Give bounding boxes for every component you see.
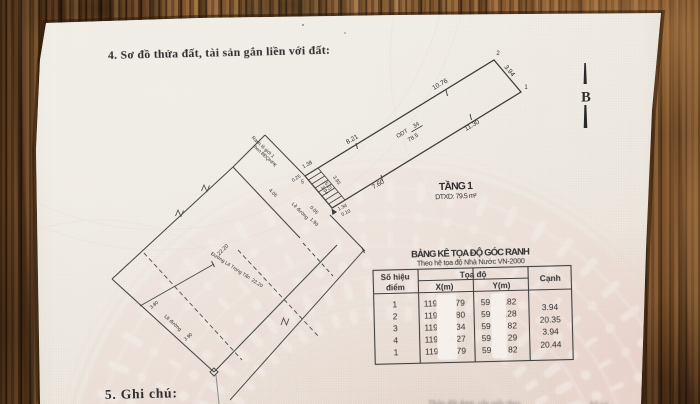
svg-text:119: 119 (424, 322, 438, 332)
svg-text:59: 59 (482, 333, 492, 343)
svg-text:59: 59 (482, 345, 492, 355)
svg-text:119: 119 (425, 334, 439, 344)
svg-text:82: 82 (507, 320, 517, 330)
svg-text:.82: .82 (505, 296, 517, 306)
svg-text:.28: .28 (505, 308, 517, 318)
svg-text:1: 1 (394, 347, 399, 357)
svg-text:5: 5 (301, 180, 304, 186)
svg-text:Thửa đất được cấp giấy theo: Thửa đất được cấp giấy theo (428, 399, 520, 404)
svg-text:hồ sơ: hồ sơ (590, 400, 608, 404)
svg-text:3.94: 3.94 (542, 326, 559, 336)
svg-text:20.44: 20.44 (540, 339, 562, 350)
svg-text:59: 59 (481, 321, 491, 331)
svg-text:2: 2 (393, 311, 398, 321)
svg-text:4: 4 (393, 335, 398, 345)
svg-text:Tọa độ: Tọa độ (460, 270, 487, 280)
svg-text:5. Ghi chú:: 5. Ghi chú: (105, 385, 177, 402)
svg-text:điểm: điểm (386, 283, 405, 292)
svg-text:DTXD: 79.5 m²: DTXD: 79.5 m² (435, 193, 477, 201)
svg-text:119: 119 (424, 310, 438, 320)
svg-text:59: 59 (481, 309, 491, 319)
svg-text:1: 1 (392, 299, 397, 309)
svg-text:29: 29 (508, 332, 518, 342)
svg-text:82: 82 (508, 344, 518, 354)
svg-text:3: 3 (393, 323, 398, 333)
svg-text:B: B (581, 90, 591, 106)
svg-text:Số hiệu: Số hiệu (381, 272, 410, 282)
svg-text:TẦNG 1: TẦNG 1 (439, 179, 474, 193)
svg-text:3.94: 3.94 (542, 302, 559, 312)
svg-text:20.35: 20.35 (540, 314, 562, 325)
svg-text:Y(m): Y(m) (492, 281, 510, 290)
svg-text:X(m): X(m) (435, 282, 453, 291)
svg-text:119: 119 (424, 298, 438, 308)
svg-text:119: 119 (425, 346, 439, 356)
svg-text:Cạnh: Cạnh (540, 273, 561, 284)
